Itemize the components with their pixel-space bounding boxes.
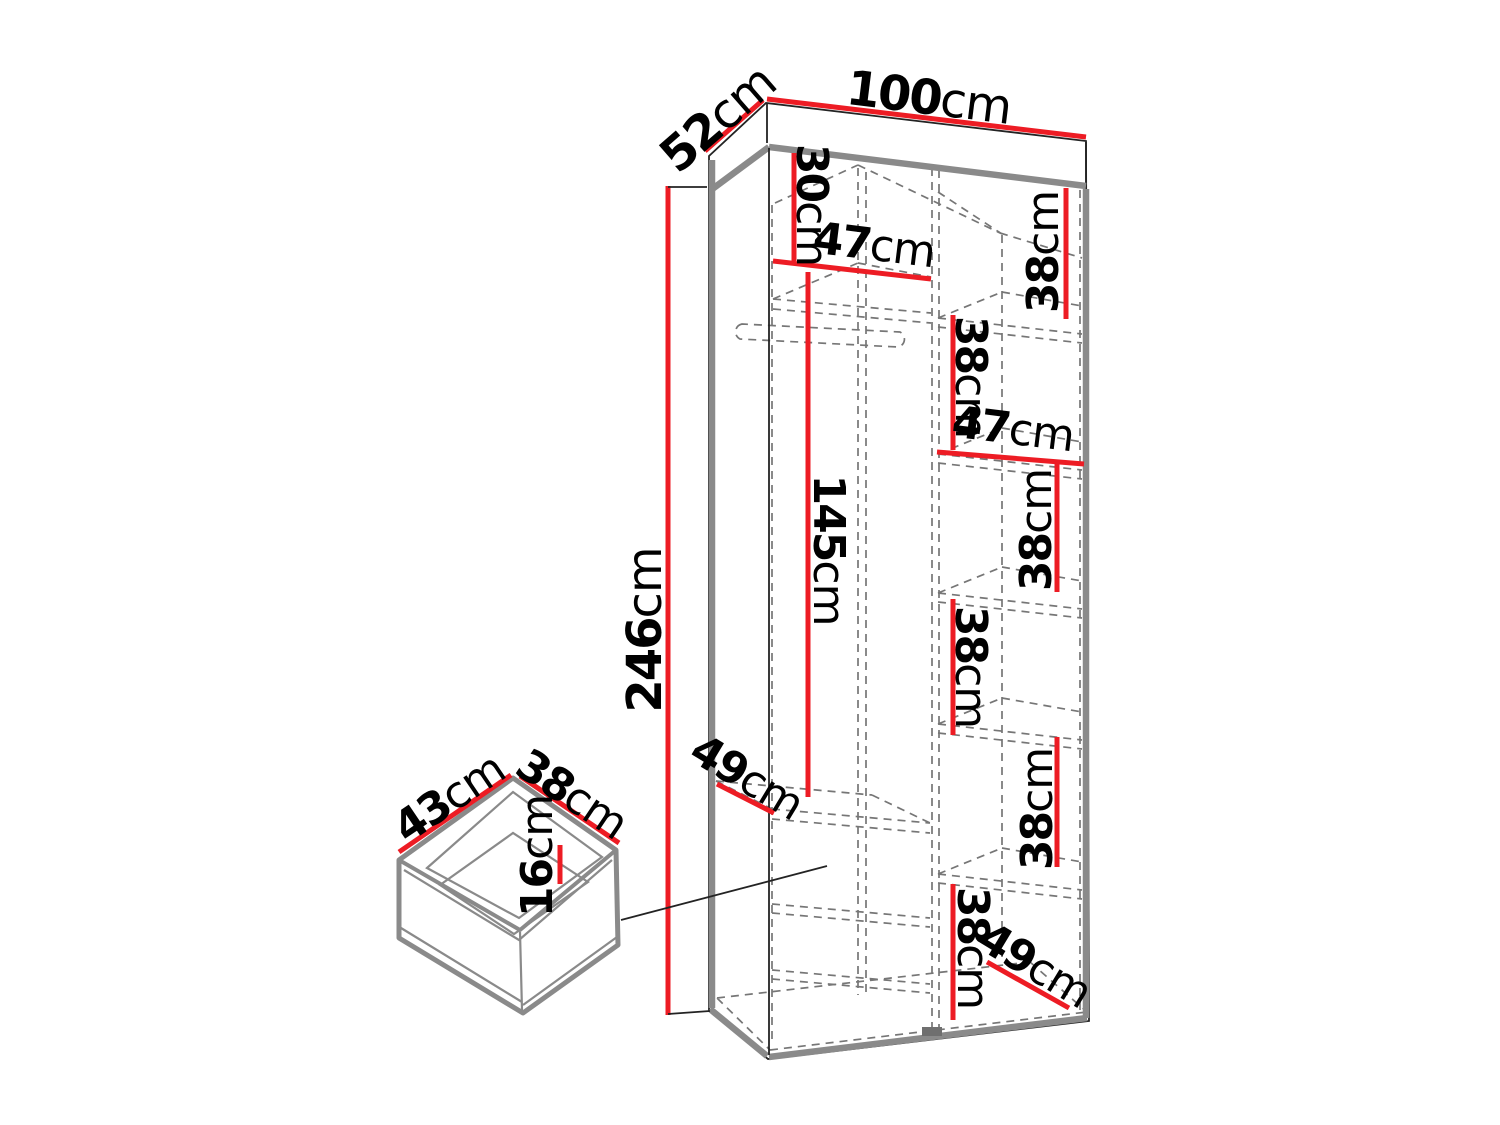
dim-shelf-3-label: 38cm [1011, 469, 1062, 591]
dim-drawer-height-unit: cm [512, 795, 563, 860]
dim-shelf-5-value: 38 [1012, 813, 1063, 870]
dim-overall-width-unit: cm [937, 72, 1014, 136]
dim-left-width-unit: cm [867, 219, 938, 278]
diagram-canvas: 100cm 52cm 246cm 30cm 47cm 145cm 49cm 38… [0, 0, 1500, 1125]
dim-shelf-4-label: 38cm [946, 606, 997, 728]
dim-hanging-height-label: 145cm [804, 475, 855, 626]
dim-left-width-value: 47 [810, 212, 873, 270]
dim-drawer-height-label: 16cm [512, 795, 563, 917]
dim-drawer-height-value: 16 [512, 860, 563, 918]
dim-shelf-3-value: 38 [1011, 534, 1062, 591]
dim-overall-height-label: 246cm [617, 547, 673, 712]
dim-shelf-4-value: 38 [946, 606, 997, 663]
dim-shelf-4-unit: cm [946, 663, 997, 728]
wardrobe-dimension-diagram: 100cm 52cm 246cm 30cm 47cm 145cm 49cm 38… [0, 0, 1500, 1125]
dim-right-width-value: 47 [949, 396, 1012, 454]
dim-shelf-5-label: 38cm [1012, 748, 1063, 870]
height-extension-lines [668, 187, 710, 1014]
dim-shelf-1-value: 38 [1018, 256, 1069, 313]
dim-right-width-unit: cm [1006, 403, 1077, 462]
dim-overall-height-unit: cm [617, 547, 673, 618]
dim-overall-width-value: 100 [844, 60, 945, 127]
dim-overall-height-value: 246 [617, 618, 673, 712]
dim-shelf-1-unit: cm [1018, 191, 1069, 256]
dim-shelf-1-label: 38cm [1018, 191, 1069, 313]
divider-base-cap [922, 1027, 942, 1036]
dim-shelf-5-unit: cm [1012, 748, 1063, 813]
dim-hanging-height-unit: cm [804, 560, 855, 625]
dim-shelf-3-unit: cm [1011, 469, 1062, 534]
dim-top-section-value: 30 [787, 144, 838, 202]
dim-hanging-height-value: 145 [804, 475, 855, 561]
dim-shelf-2-value: 38 [946, 316, 997, 373]
